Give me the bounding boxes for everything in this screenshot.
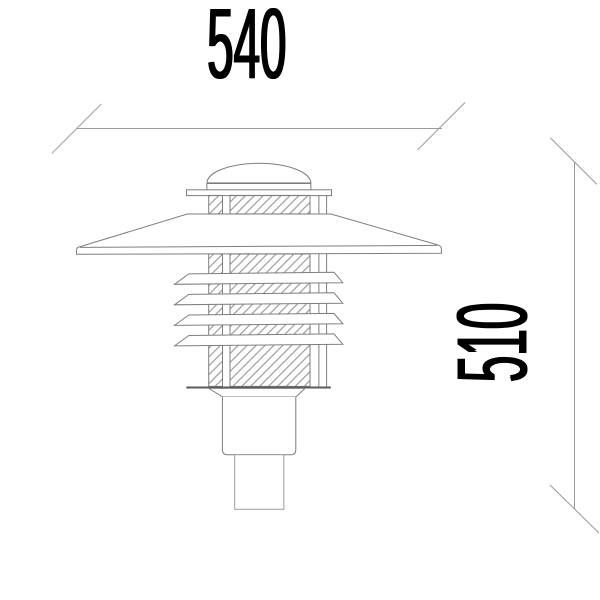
svg-text:510: 510 xyxy=(436,302,548,381)
svg-text:540: 540 xyxy=(208,0,287,100)
